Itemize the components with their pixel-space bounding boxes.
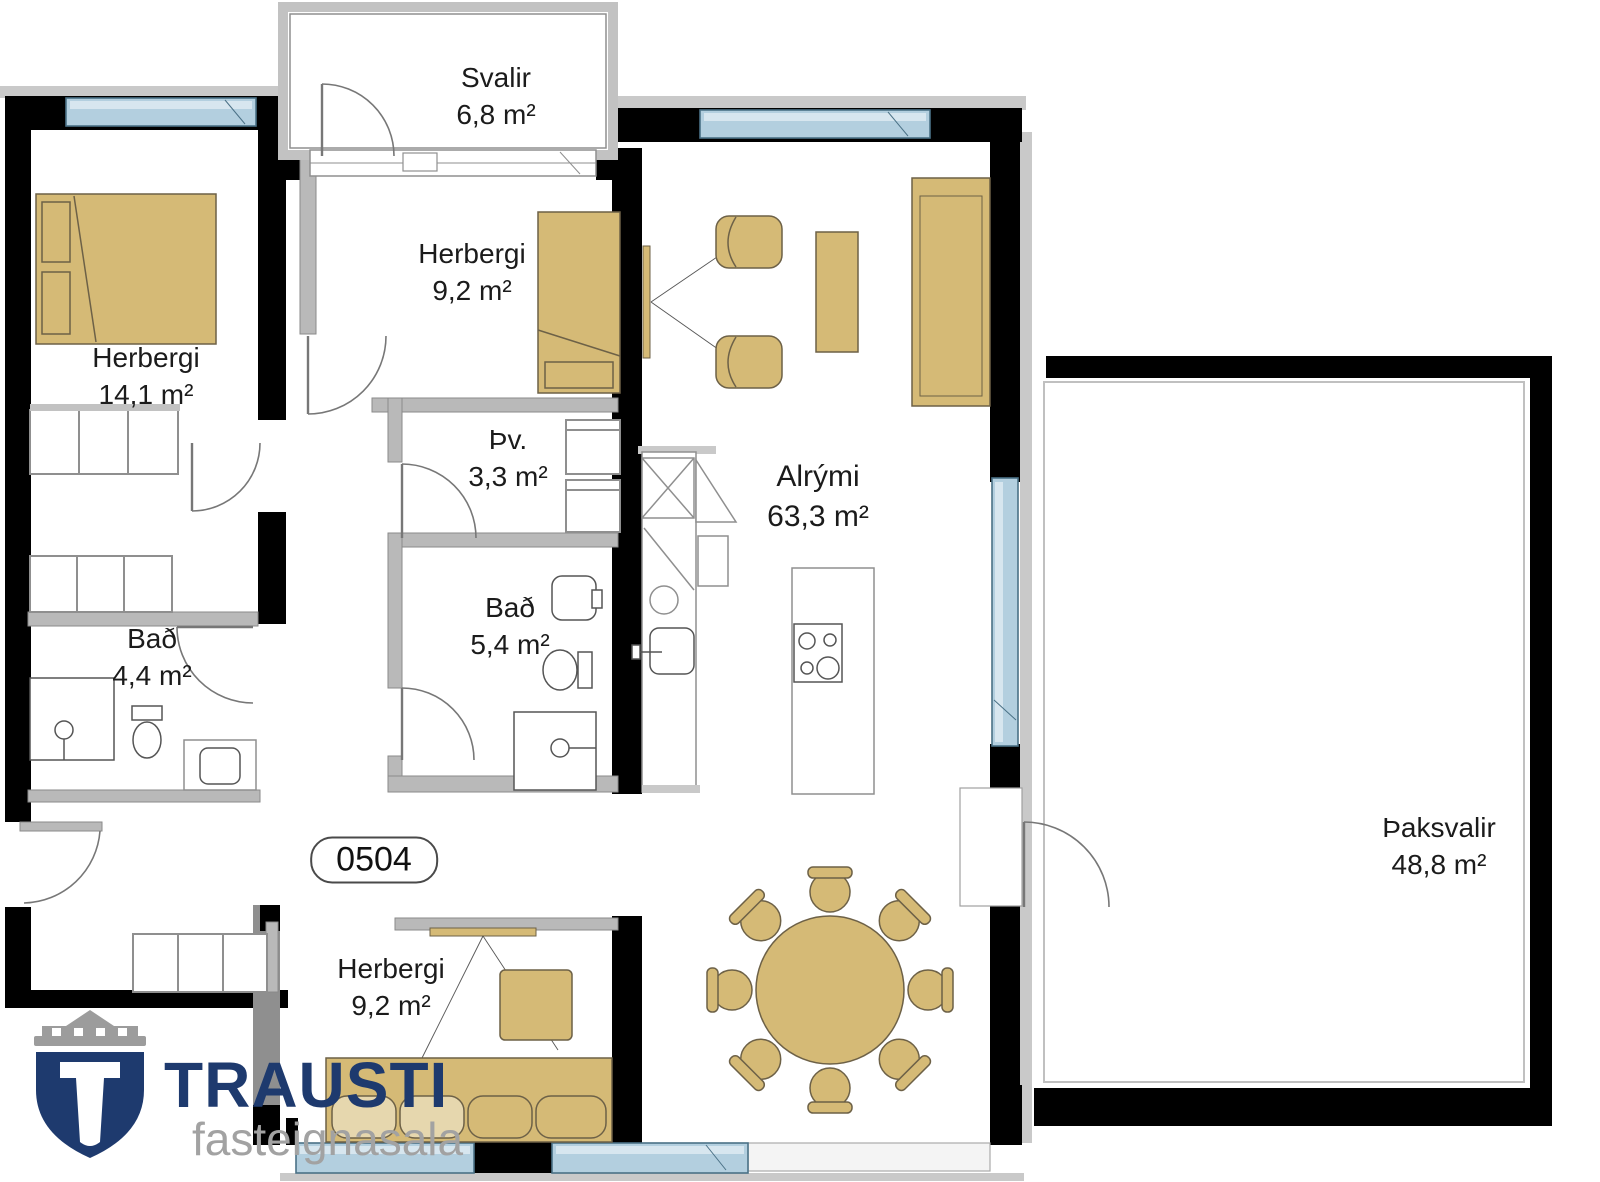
balcony-structure [283,7,613,176]
window-bedroom-left [66,98,256,126]
wardrobe-icon [30,556,172,612]
room-label-thaksvalir: Þaksvalir48,8 m² [1382,809,1496,883]
stove-icon [794,624,842,682]
roof-terrace-structure [1034,356,1552,1126]
room-label-laundry: Þv.3,3 m² [468,421,547,495]
logo-brand-text: TRAUSTI [164,1048,448,1122]
toilet-icon [132,706,162,758]
door-bath-mid [402,688,474,760]
shower-icon [30,678,114,760]
door-laundry [402,464,476,538]
logo-tagline-text: fasteignasala [192,1112,463,1166]
window-alrymi-bottom [552,1143,748,1173]
bottom-rail [748,1143,990,1171]
sofa-icon [912,178,990,406]
door-entrance [24,831,100,903]
room-label-herbergi-left: Herbergi14,1 m² [92,339,199,413]
toilet-icon [543,650,592,690]
corner-cabinet-icon [696,460,736,522]
table-icon [500,970,572,1040]
window-alrymi-right [992,478,1018,746]
single-bed-icon [538,212,620,393]
room-label-bath-mid: Bað5,4 m² [470,589,549,663]
double-bed-icon [36,194,216,344]
armchair-icon [716,216,782,268]
tv-icon [430,928,536,936]
sink-vanity-icon [184,740,256,790]
refrigerator-icon [642,458,694,518]
wardrobe-icon [30,404,180,474]
sink-icon [552,576,602,620]
kitchen-island-icon [792,568,874,794]
bath-left-fixtures [30,678,256,790]
floor-plan-drawing [0,0,1600,1182]
agency-logo: TRAUSTI fasteignasala [26,1006,496,1176]
floor-plan: Svalir6,8 m² Herbergi14,1 m² Herbergi9,2… [0,0,1600,1182]
room-label-bath-left: Bað4,4 m² [112,620,191,694]
unit-number-badge: 0504 [310,837,438,884]
shield-icon [26,1006,154,1166]
door-bedroom-left [192,443,260,511]
room-label-svalir: Svalir6,8 m² [456,59,535,133]
wardrobe-icon [133,934,267,992]
armchair-icon [716,336,782,388]
tv-icon [643,246,650,358]
kitchen-counter-icon [632,446,736,793]
window-alrymi-top [700,110,930,138]
door-terrace [960,788,1109,907]
room-label-herbergi-top: Herbergi9,2 m² [418,235,525,309]
room-label-alrymi: Alrými63,3 m² [767,457,869,537]
washer-icon [566,420,620,532]
dining-table-icon [707,867,953,1113]
shower-icon [514,712,596,790]
coffee-table-icon [816,232,858,352]
